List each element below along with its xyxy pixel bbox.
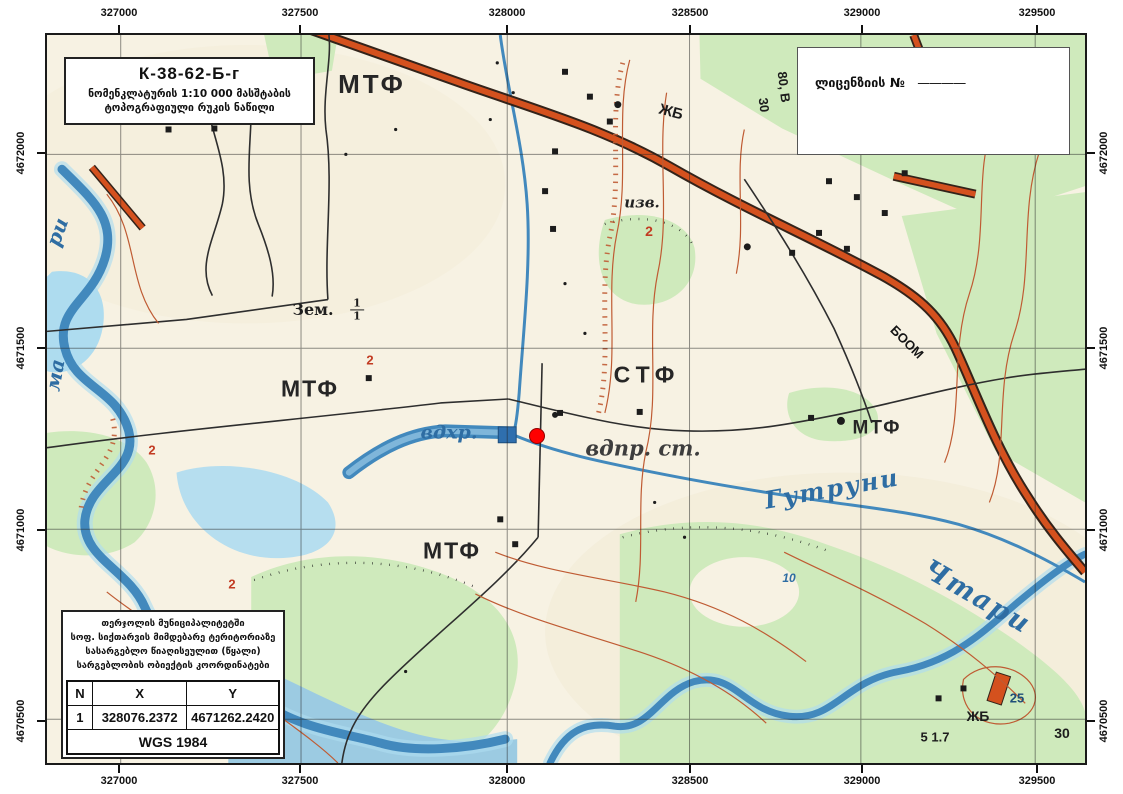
grid-easting-label: 327500 <box>282 7 319 19</box>
grid-easting-label: 327000 <box>101 775 138 787</box>
table-row: 1 328076.2372 4671262.2420 <box>67 706 280 730</box>
grid-tick <box>1087 529 1095 531</box>
grid-easting-label: 328500 <box>672 775 709 787</box>
info-line-3: სასარგებლო წიაღისეულით (წყალი) <box>63 645 283 659</box>
grid-northing-label: 4671500 <box>15 327 27 370</box>
grid-tick <box>37 152 45 154</box>
grid-northing-label: 4670500 <box>1098 700 1110 743</box>
grid-tick <box>689 25 691 33</box>
grid-northing-label: 4671000 <box>1098 509 1110 552</box>
map-canvas[interactable]: К-38-62-Б-г ნომენკლატურის 1:10 000 მასშტ… <box>45 33 1087 765</box>
map-sheet: К-38-62-Б-г ნომენკლატურის 1:10 000 მასშტ… <box>0 0 1123 794</box>
info-line-1: თერჯოლის მუნიციპალიტეტში <box>63 617 283 631</box>
grid-tick <box>1087 720 1095 722</box>
info-line-4: სარგებლობის ობიექტის კოორდინატები <box>63 659 283 673</box>
grid-tick <box>118 25 120 33</box>
cell-x: 328076.2372 <box>93 706 187 730</box>
coordinates-table: N X Y 1 328076.2372 4671262.2420 WGS 198… <box>66 680 281 755</box>
sheet-code: К-38-62-Б-г <box>66 64 313 84</box>
cell-n: 1 <box>67 706 93 730</box>
grid-tick <box>506 765 508 773</box>
grid-tick <box>861 765 863 773</box>
grid-tick <box>299 765 301 773</box>
sheet-subtitle-line1: ნომენკლატურის 1:10 000 მასშტაბის <box>66 88 313 100</box>
grid-easting-label: 329500 <box>1019 7 1056 19</box>
license-label: ლიცენზიის № <box>815 75 905 90</box>
grid-tick <box>861 25 863 33</box>
grid-easting-label: 328500 <box>672 7 709 19</box>
datum-label: WGS 1984 <box>67 730 280 755</box>
grid-tick <box>1036 25 1038 33</box>
grid-northing-label: 4671000 <box>15 509 27 552</box>
grid-easting-label: 328000 <box>489 775 526 787</box>
grid-tick <box>1036 765 1038 773</box>
grid-easting-label: 327000 <box>101 7 138 19</box>
grid-easting-label: 327500 <box>282 775 319 787</box>
grid-tick <box>37 347 45 349</box>
cell-y: 4671262.2420 <box>187 706 280 730</box>
point-marker <box>529 428 545 444</box>
info-line-2: სოფ. სიქთარვის მიმდებარე ტერიტორიაზე <box>63 631 283 645</box>
coordinates-info-box: თერჯოლის მუნიციპალიტეტში სოფ. სიქთარვის … <box>61 610 285 759</box>
grid-easting-label: 329500 <box>1019 775 1056 787</box>
grid-northing-label: 4672000 <box>1098 132 1110 175</box>
grid-tick <box>506 25 508 33</box>
grid-tick <box>299 25 301 33</box>
grid-easting-label: 329000 <box>844 775 881 787</box>
header-y: Y <box>187 681 280 706</box>
grid-tick <box>118 765 120 773</box>
grid-tick <box>37 529 45 531</box>
grid-tick <box>689 765 691 773</box>
grid-easting-label: 329000 <box>844 7 881 19</box>
grid-easting-label: 328000 <box>489 7 526 19</box>
grid-northing-label: 4672000 <box>15 132 27 175</box>
grid-tick <box>37 720 45 722</box>
header-n: N <box>67 681 93 706</box>
grid-tick <box>1087 152 1095 154</box>
table-header-row: N X Y <box>67 681 280 706</box>
sheet-subtitle-line2: ტოპოგრაფიული რუკის ნაწილი <box>66 102 313 114</box>
table-footer-row: WGS 1984 <box>67 730 280 755</box>
license-box: ლიცენზიის № ———— <box>797 47 1070 155</box>
map-title-box: К-38-62-Б-г ნომენკლატურის 1:10 000 მასშტ… <box>64 57 315 125</box>
header-x: X <box>93 681 187 706</box>
license-number-blank: ———— <box>917 76 965 91</box>
grid-northing-label: 4671500 <box>1098 327 1110 370</box>
grid-tick <box>1087 347 1095 349</box>
grid-northing-label: 4670500 <box>15 700 27 743</box>
